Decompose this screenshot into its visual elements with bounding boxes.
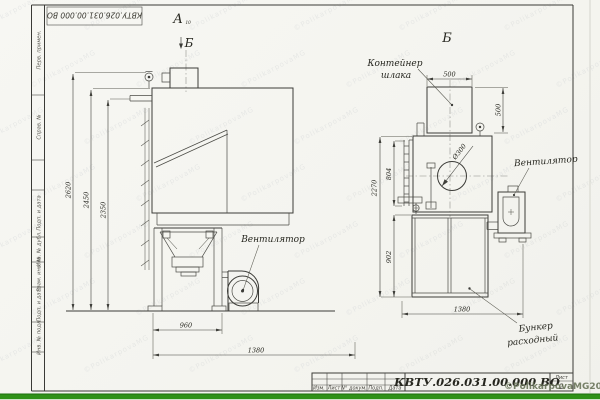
view-a: А 10 Б [65,12,356,359]
view-b-label: Б [441,31,452,46]
dim-804: 804 [385,168,393,180]
view-a-note: 10 [186,20,192,25]
dim-2450: 2450 [83,192,91,210]
dim-2620: 2620 [65,182,73,200]
outlet-box [170,68,198,88]
view-b-arrow-label: Б [184,36,194,50]
container-label-line2: шлака [381,71,411,81]
fan-label-left: Вентилятор [240,235,305,245]
copyright-watermark: ©PolikarpovaMG2021 [504,382,600,392]
service-bracket [398,197,422,203]
view-b-dimensions: 500 500 2270 804 902 1380 [371,71,524,319]
dim-500-width: 500 [443,71,455,79]
dia-arrow [442,179,448,186]
housing-body [152,88,293,213]
dim-500-height: 500 [495,104,503,116]
tb-col-list: Лист [327,386,342,392]
side-label-podp-data-1: Подп. и дата [37,195,43,230]
side-label-perv-primen: Перв. примен. [37,31,43,70]
fan-right-view [487,186,531,242]
drawing-frame: Перв. примен. Справ. № Подп. и дата Инв.… [32,0,591,393]
side-label-sprav-n: Справ. № [37,114,43,139]
hopper-label-line2: расходный [507,333,559,348]
top-valve [145,72,153,89]
tb-sheet-label: Лист [554,375,569,381]
dim-902: 902 [385,251,393,263]
view-a-dimensions: 2620 2450 2350 960 1380 [65,73,356,360]
container-label-line1: Контейнер [367,59,423,69]
drawing-sheet-photo: ©PolikarpovaMG©PolikarpovaMG©Polikarpova… [0,0,600,400]
dim-960: 960 [180,322,192,330]
fan-left-view [222,271,259,311]
view-b-direction-arrow [179,44,183,50]
side-label-inv-podl: Инв. № подл. [37,319,43,355]
stand [148,228,226,311]
ladder [404,140,413,206]
photo-bottom-edge [0,394,600,400]
engineering-drawing: Перв. примен. Справ. № Подп. и дата Инв.… [0,0,600,400]
tb-col-izm: Изм. [313,386,325,392]
dim-1380-left: 1380 [248,347,265,355]
feed-hopper [412,215,488,297]
dim-1380-right: 1380 [454,306,471,314]
side-label-podp-data-2: Подп. и дата [37,286,43,321]
view-a-label: А [172,12,183,27]
dim-2270: 2270 [371,180,379,198]
dim-2350: 2350 [100,202,108,220]
hopper-label-line1: Бункер [517,321,553,335]
view-b: Б Контейнер шлака Ø30 [367,31,579,349]
tb-col-podp: Подп. [368,386,383,392]
top-stamp-designation: КВТУ.026.031.00.000 ВО [47,11,142,20]
side-rail [141,108,149,270]
cyclone-body [413,136,492,212]
fan-label-right: Вентилятор [513,155,578,169]
pressure-gauge [476,123,484,136]
tb-col-ndokum: N° докум. [341,386,367,392]
drain-pipe [426,163,436,209]
dim-dia300: Ø300 [450,142,468,162]
container-stub [417,123,424,136]
slag-container [427,87,472,133]
